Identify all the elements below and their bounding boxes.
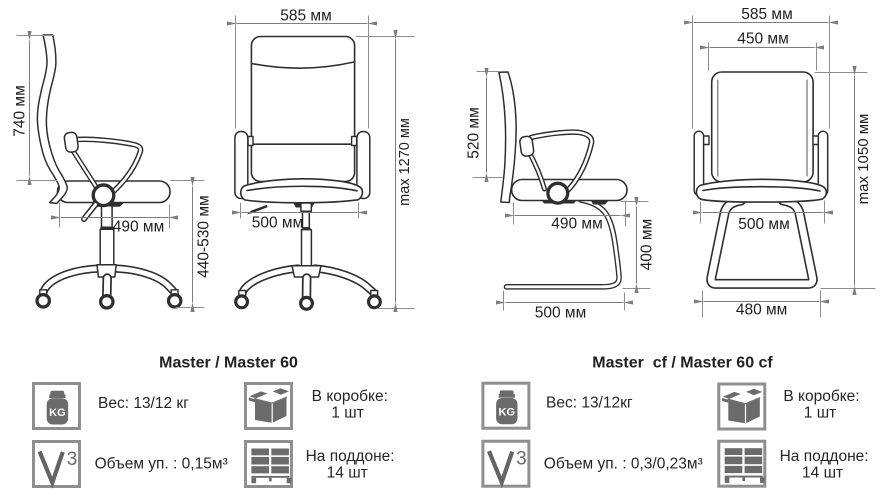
svg-text:400 мм: 400 мм [639, 219, 656, 270]
svg-text:Master / Master 60: Master / Master 60 [159, 355, 298, 372]
svg-text:480 мм: 480 мм [736, 301, 787, 318]
svg-text:На поддоне:: На поддоне: [306, 448, 395, 465]
svg-text:500 мм: 500 мм [535, 305, 586, 322]
svg-text:740 мм: 740 мм [12, 85, 29, 136]
svg-text:В коробке:: В коробке: [783, 388, 859, 405]
svg-text:Объем уп. : 0,15м³: Объем уп. : 0,15м³ [95, 455, 228, 472]
svg-text:Вес: 13/12 кг: Вес: 13/12 кг [98, 395, 189, 412]
svg-text:440-530 мм: 440-530 мм [196, 195, 213, 278]
svg-text:В коробке:: В коробке: [312, 388, 388, 405]
svg-text:1 шт: 1 шт [331, 404, 363, 421]
svg-text:490 мм: 490 мм [113, 218, 164, 235]
svg-text:14 шт: 14 шт [802, 464, 843, 481]
svg-text:500 мм: 500 мм [738, 216, 789, 233]
svg-text:520 мм: 520 мм [465, 107, 482, 158]
svg-text:Master cf / Master 60 cf: Master cf / Master 60 cf [592, 354, 773, 371]
svg-text:max 1270 мм: max 1270 мм [397, 118, 413, 206]
svg-text:500 мм: 500 мм [252, 215, 303, 232]
svg-text:450 мм: 450 мм [737, 31, 788, 48]
svg-text:Вес: 13/12кг: Вес: 13/12кг [546, 395, 633, 412]
svg-text:585 мм: 585 мм [741, 6, 792, 23]
svg-text:Объем уп. : 0,3/0,23м³: Объем уп. : 0,3/0,23м³ [544, 455, 703, 472]
svg-text:На поддоне:: На поддоне: [780, 448, 869, 465]
svg-text:max 1050 мм: max 1050 мм [855, 114, 872, 205]
svg-text:14 шт: 14 шт [327, 464, 368, 481]
svg-text:1 шт: 1 шт [804, 404, 836, 421]
svg-text:585 мм: 585 мм [280, 7, 331, 24]
svg-text:490 мм: 490 мм [551, 216, 602, 233]
